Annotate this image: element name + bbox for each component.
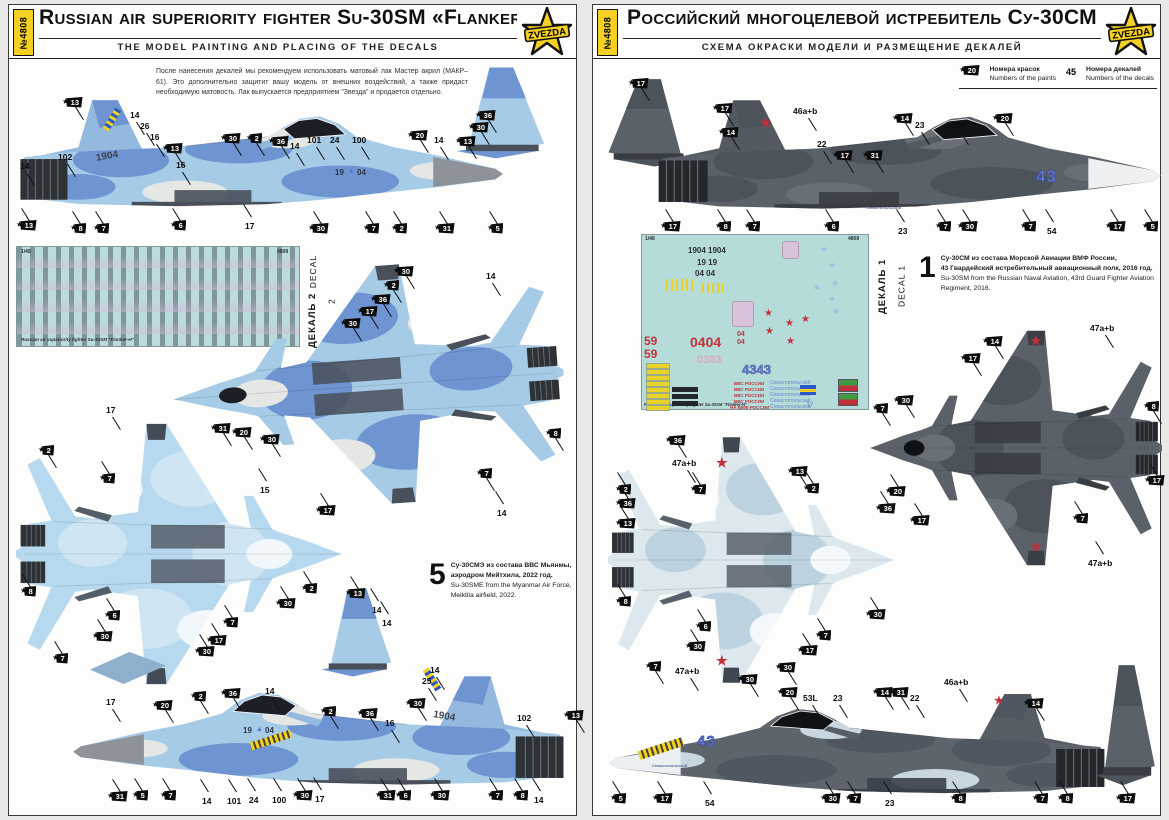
page-title: Russian air superiority fighter Su-30SM …	[39, 6, 517, 30]
instruction-sheet: №4808 Russian air superiority fighter Su…	[0, 0, 1169, 820]
fin-detail-left-top	[455, 62, 555, 162]
decal-item-★: ★	[785, 319, 794, 329]
decal-item-flag-g	[838, 379, 858, 392]
kit-number: №4808	[603, 16, 613, 49]
decal-item-★: ★	[813, 283, 821, 292]
decal-item-★: ★	[786, 337, 795, 347]
decal-item-ВВС РОССИИ: ВВС РОССИИ	[734, 388, 764, 393]
decal-item-19 19: 19 19	[697, 259, 717, 267]
aircraft-side-view-right-bottom	[606, 690, 1111, 820]
decal-item-blob-p	[732, 301, 754, 327]
decal-item-59: 59	[644, 348, 657, 360]
decal-item-▽: ▽	[807, 401, 813, 409]
decal-item-bar-k	[672, 387, 698, 392]
aircraft-bottom-view-right	[608, 428, 898, 692]
decal-item-★: ★	[831, 279, 839, 288]
kit-number: №4808	[19, 16, 29, 49]
decal-item-1/48: 1/48	[21, 250, 31, 255]
title-rule	[623, 38, 1101, 39]
decal-item-★: ★	[765, 327, 774, 337]
decal-sheet-1: 1904 190419 1904 0459590404040403034343В…	[641, 234, 869, 410]
aircraft-side-view-left-bottom	[70, 672, 570, 814]
symbols-legend: ★20 Номера красок Numbers of the paints …	[959, 65, 1157, 89]
scheme-caption-5: 5 Су-30СМЭ из состава ВВС Мьянмы, аэродр…	[429, 561, 579, 600]
decal-item-Russian air superior: Russian air superiority fighter Su-30SM …	[21, 338, 134, 343]
decal-item-ВВС РОССИИ: ВВС РОССИИ	[734, 382, 764, 387]
decal-item-stripes	[666, 279, 696, 291]
decal-legend-text: Номера декалей Numbers of the decals	[1086, 65, 1154, 83]
decal-item-chev	[800, 385, 816, 395]
aircraft-side-view-left-top	[14, 96, 506, 235]
page-title: Российский многоцелевой истребитель Су-3…	[623, 6, 1101, 30]
fin-detail-right-bottom	[1096, 658, 1162, 790]
decal-item-4808: 4808	[277, 250, 288, 255]
scheme-number: 5	[429, 561, 446, 600]
decal-item-Севастопольский: Севастопольский	[770, 405, 810, 410]
aircraft-top-view-right	[866, 322, 1162, 574]
decal-item-★: ★	[828, 295, 836, 304]
decal-item-flag-g	[838, 393, 858, 406]
decal-item-stripes	[702, 283, 728, 293]
decal-item-04: 04	[737, 331, 745, 338]
decal-item-04 04: 04 04	[695, 270, 715, 278]
decal-number-sample: 45	[1066, 67, 1076, 77]
kit-number-badge: №4808	[597, 9, 618, 56]
zvezda-logo-icon: ZVEZDA	[1105, 6, 1157, 58]
header-divider	[9, 58, 576, 59]
page-subtitle: СХЕМА ОКРАСКИ МОДЕЛИ И РАЗМЕЩЕНИЕ ДЕКАЛЕ…	[623, 42, 1101, 53]
paint-flag-sample: ★20	[959, 65, 980, 76]
kit-number-badge: №4808	[13, 9, 34, 56]
decal-sheet-1-label: ДЕКАЛЬ 1 DECAL 1	[874, 240, 911, 332]
aircraft-side-view-right-top	[652, 96, 1164, 238]
decal-item-4343: 4343	[742, 363, 771, 376]
decal-item-0404: 0404	[690, 335, 721, 349]
page-subtitle: THE MODEL PAINTING AND PLACING OF THE DE…	[39, 42, 517, 53]
decal-item-★: ★	[820, 245, 828, 254]
decal-item-04: 04	[737, 339, 745, 346]
varnish-note: После нанесения декалей мы рекомендуем и…	[156, 67, 468, 99]
decal-item-★: ★	[832, 307, 840, 316]
decal-item-59: 59	[644, 335, 657, 347]
decal-item-★: ★	[764, 309, 773, 319]
zvezda-logo-icon: ZVEZDA	[521, 6, 573, 58]
paint-legend-text: Номера красок Numbers of the paints	[990, 65, 1057, 83]
decal-item-bar-k	[672, 401, 698, 406]
scheme-number: 1	[919, 254, 936, 293]
fin-detail-left-bottom	[320, 584, 400, 680]
aircraft-bottom-view-left	[16, 414, 346, 694]
decal-item-bar-k	[672, 394, 698, 399]
decal-item-★: ★	[801, 315, 810, 325]
decal-item-0303: 0303	[697, 355, 721, 366]
scheme-caption-1: 1 Су-30СМ из состава Морской Авиации ВМФ…	[919, 254, 1159, 293]
decal-item-blob-p	[782, 241, 799, 259]
decal-item-ВВС РОССИИ: ВВС РОССИИ	[734, 394, 764, 399]
title-rule	[39, 38, 517, 39]
decal-item-★: ★	[828, 261, 836, 270]
header-divider	[593, 58, 1160, 59]
decal-item-bar-y	[646, 405, 670, 411]
decal-item-1904 1904: 1904 1904	[688, 247, 726, 255]
